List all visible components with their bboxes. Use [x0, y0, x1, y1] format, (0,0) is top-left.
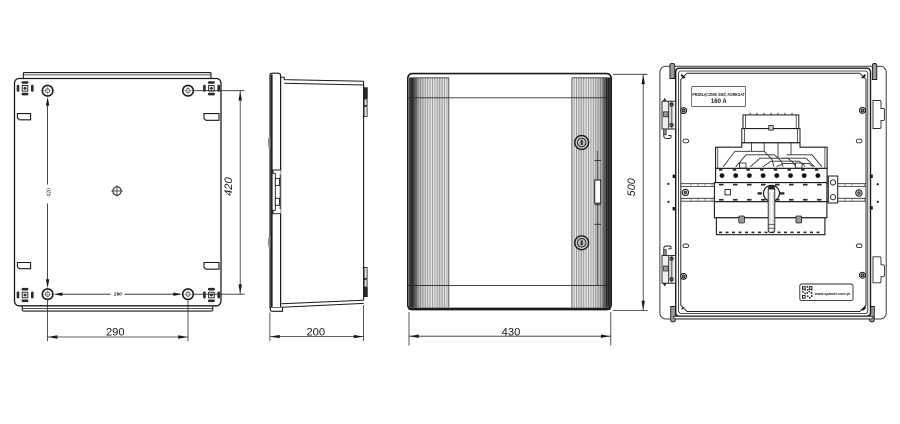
- svg-text:420: 420: [47, 188, 53, 197]
- svg-text:www.spamel.com.pl: www.spamel.com.pl: [814, 292, 850, 296]
- svg-text:160 A: 160 A: [711, 99, 727, 105]
- svg-text:290: 290: [106, 326, 125, 338]
- svg-text:420: 420: [223, 176, 235, 196]
- svg-text:290: 290: [113, 291, 122, 297]
- svg-text:500: 500: [626, 178, 638, 196]
- svg-text:430: 430: [502, 326, 521, 338]
- svg-text:PRZEŁĄCZNIK SIEĆ-AGREGAT: PRZEŁĄCZNIK SIEĆ-AGREGAT: [692, 92, 745, 97]
- svg-text:200: 200: [306, 326, 325, 338]
